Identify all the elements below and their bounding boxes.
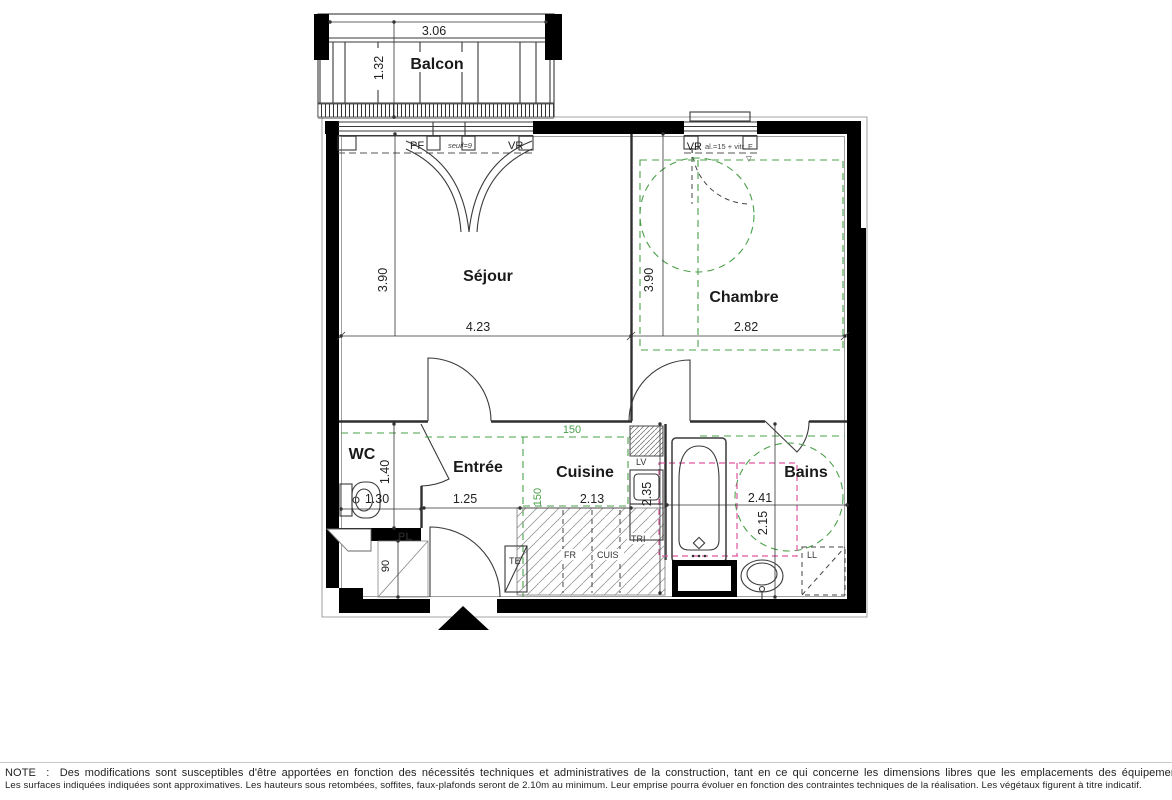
wc-door [421,424,449,486]
bathtub-drain [693,537,704,548]
window-label-vr-chambre: VR [687,141,702,153]
room-label-bains: Bains [784,464,828,481]
dim-cuisine-height: 2.35 [640,482,654,506]
dim-wc-width: 1.30 [365,492,389,506]
pink-clearances [659,463,797,556]
fixture-label-cuis: CUIS [597,550,619,560]
bath-step-inset [678,566,731,591]
legal-note: NOTE : Des modifications sont susceptibl… [0,762,1172,800]
window-label-vr-sejour: VR [508,140,523,152]
bathtub [672,438,726,562]
dim-chambre-width: 2.82 [734,320,758,334]
note-line-1: NOTE : Des modifications sont susceptibl… [0,767,1172,779]
room-label-balcon: Balcon [410,56,463,73]
balcony-railing-hatch [318,104,554,117]
kitchen-floor [517,508,665,595]
entry-door [430,527,500,597]
sejour-window [338,122,533,232]
dim-bains-height: 2.15 [756,511,770,535]
floor-plan-page: 3.06 1.32 Balcon PF seuil=9 VR VR al.=15… [0,0,1172,800]
dim-sejour-height: 3.90 [376,268,390,292]
dim-clearance-150-h: 150 [563,424,581,436]
washbasin [741,560,783,599]
window-marker-chambre: ▽ [746,154,753,163]
room-label-chambre: Chambre [709,289,778,306]
window-label-pf: PF [410,140,424,152]
fixture-label-te: TE [509,556,521,566]
sejour-door [428,358,491,421]
room-label-entree: Entrée [453,459,503,476]
right-wall [847,121,861,613]
dim-balcony-depth: 1.32 [372,56,386,80]
room-label-cuisine: Cuisine [556,464,614,481]
room-label-sejour: Séjour [463,268,513,285]
floor-plan-drawing: 3.06 1.32 Balcon PF seuil=9 VR VR al.=15… [0,0,1172,800]
chambre-door [629,360,690,421]
dishwasher [630,426,663,456]
dim-closet-width: 90 [380,560,392,572]
fixture-label-fr: FR [564,550,576,560]
chambre-turning-circle [640,158,754,272]
sejour-french-door-arcs [406,141,532,232]
fixture-label-pl: PL [398,531,412,543]
window-label-seuil: seuil=9 [448,141,473,150]
balcony-corner-right [545,14,562,60]
note-line-2: Les surfaces indiquées indiquées sont ap… [0,780,1172,791]
dim-sejour-width: 4.23 [466,320,490,334]
entry-arrow [438,606,489,630]
chambre-window-swing [692,148,750,204]
left-wall [326,121,339,588]
dim-entree-width: 1.25 [453,492,477,506]
dim-wc-height: 1.40 [378,460,392,484]
room-label-wc: WC [349,446,376,463]
fixture-label-ll: LL [807,550,817,560]
dim-cuisine-width: 2.13 [580,492,604,506]
dim-clearance-150-v: 150 [532,488,544,506]
fixture-label-lv: LV [636,457,646,467]
balcony-corner-left [314,14,329,60]
fixture-label-tri: TRI [631,534,646,544]
dim-bains-width: 2.41 [748,491,772,505]
window-note-chambre: al.=15 + vitr. F [705,142,753,151]
dim-balcony-width: 3.06 [422,24,446,38]
bottom-wall [497,599,861,613]
dim-chambre-height: 3.90 [642,268,656,292]
